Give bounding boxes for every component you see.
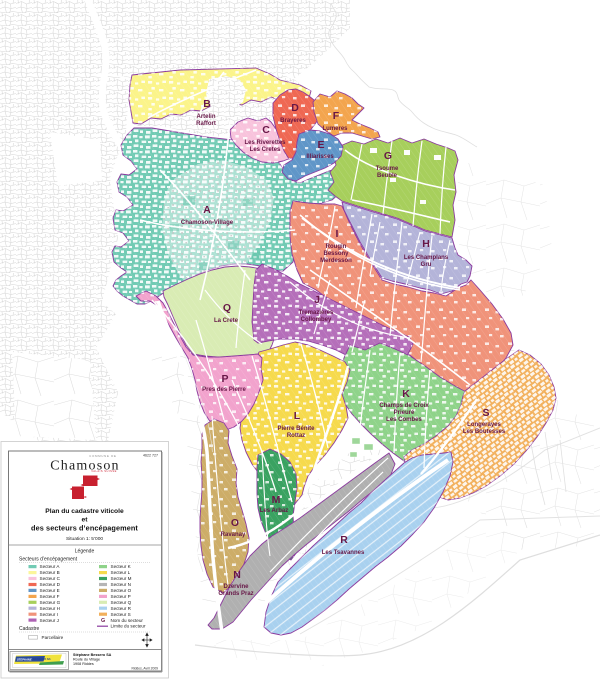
svg-text:Rottaz: Rottaz (287, 433, 305, 439)
svg-text:Légende: Légende (75, 549, 95, 555)
svg-text:Secteur S: Secteur S (111, 612, 131, 617)
svg-text:G: G (384, 150, 392, 162)
svg-text:Rougin: Rougin (326, 244, 347, 250)
svg-text:Situation 1: 5’000: Situation 1: 5’000 (66, 536, 103, 542)
svg-text:Grands Praz: Grands Praz (218, 591, 253, 597)
svg-text:Illiarisses: Illiarisses (306, 154, 334, 160)
svg-text:L: L (294, 410, 301, 422)
svg-text:M: M (272, 494, 281, 506)
svg-text:BESSERO SA: BESSERO SA (33, 657, 51, 661)
svg-text:4622 727: 4622 727 (143, 454, 158, 458)
svg-text:N: N (233, 569, 241, 581)
svg-text:Riddes, Avril 2009: Riddes, Avril 2009 (131, 667, 158, 671)
svg-text:Plan du cadastre viticole: Plan du cadastre viticole (45, 508, 124, 515)
svg-text:D: D (291, 102, 299, 114)
svg-text:Secteur K: Secteur K (111, 564, 132, 569)
svg-text:Secteur E: Secteur E (40, 588, 60, 593)
svg-text:A: A (203, 204, 211, 216)
svg-text:Collombey: Collombey (301, 317, 332, 323)
svg-text:Secteur M: Secteur M (111, 576, 132, 581)
svg-text:Cadastre: Cadastre (19, 626, 40, 632)
svg-text:C: C (262, 124, 270, 136)
svg-text:I: I (336, 228, 339, 240)
svg-text:COMMUNE DE: COMMUNE DE (89, 454, 116, 458)
svg-text:Secteur F: Secteur F (40, 594, 60, 599)
svg-text:Beuble: Beuble (377, 173, 398, 179)
svg-text:Parcellaire: Parcellaire (42, 635, 64, 640)
svg-text:B: B (203, 98, 211, 110)
svg-text:P: P (221, 373, 228, 385)
svg-text:Les Tsavannes: Les Tsavannes (322, 550, 365, 556)
svg-text:Ravanay: Ravanay (221, 532, 246, 538)
svg-text:Prieuré: Prieuré (394, 410, 415, 416)
svg-text:Chamoson-Village: Chamoson-Village (181, 220, 234, 226)
svg-text:Merdesson: Merdesson (320, 258, 352, 264)
svg-text:Les Cretes: Les Cretes (250, 147, 281, 153)
svg-text:O: O (231, 517, 239, 529)
svg-text:J: J (314, 294, 320, 306)
svg-text:Champs de Croix: Champs de Croix (379, 403, 429, 409)
svg-text:Secteur A: Secteur A (40, 564, 61, 569)
svg-text:Dzervine: Dzervine (223, 584, 249, 590)
svg-text:K: K (402, 388, 410, 400)
svg-text:S: S (482, 407, 489, 419)
svg-text:Route du Village: Route du Village (73, 658, 100, 662)
svg-text:La Crete: La Crete (214, 318, 239, 324)
svg-text:R: R (340, 534, 348, 546)
svg-text:Gru: Gru (421, 262, 432, 268)
svg-text:Lumeres: Lumeres (322, 126, 348, 132)
svg-text:Tsoume: Tsoume (376, 166, 399, 172)
svg-text:Secteur H: Secteur H (40, 606, 60, 611)
svg-text:Secteur B: Secteur B (40, 570, 60, 575)
svg-text:1908 Riddes: 1908 Riddes (73, 662, 94, 666)
svg-text:Pierre Bénite: Pierre Bénite (277, 426, 315, 432)
svg-text:Les Champlans: Les Champlans (404, 255, 449, 261)
svg-text:Les Combes: Les Combes (386, 417, 422, 423)
svg-text:Secteur Q: Secteur Q (111, 600, 132, 605)
svg-text:Limite du secteur: Limite du secteur (111, 624, 146, 629)
svg-text:STEPHANE: STEPHANE (17, 658, 32, 662)
svg-text:Secteur N: Secteur N (111, 582, 131, 587)
svg-text:F: F (333, 110, 340, 122)
svg-text:Nom du secteur: Nom du secteur (111, 618, 144, 623)
svg-text:Secteur I: Secteur I (40, 612, 58, 617)
svg-text:Secteur G: Secteur G (40, 600, 61, 605)
svg-text:Brayeres: Brayeres (280, 118, 306, 124)
svg-text:Artelin: Artelin (196, 114, 215, 120)
svg-text:E: E (317, 139, 324, 151)
svg-text:et: et (82, 517, 89, 524)
svg-text:Les Boutesses: Les Boutesses (463, 429, 506, 435)
svg-text:des secteurs d’encépagement: des secteurs d’encépagement (31, 524, 138, 533)
svg-text:H: H (422, 238, 430, 250)
svg-text:Tremazieres: Tremazieres (299, 310, 334, 316)
svg-text:Secteurs d’encépagement: Secteurs d’encépagement (19, 557, 78, 563)
svg-text:Les Arbaz: Les Arbaz (260, 508, 288, 514)
svg-text:Bessony: Bessony (323, 251, 349, 257)
svg-text:Q: Q (223, 302, 231, 314)
svg-text:Raffort: Raffort (196, 121, 216, 127)
svg-text:Secteur O: Secteur O (111, 588, 132, 593)
svg-text:Stéphane Bessero SA: Stéphane Bessero SA (73, 653, 112, 657)
svg-text:G: G (101, 618, 105, 624)
svg-text:Secteur C: Secteur C (40, 576, 61, 581)
svg-text:Longerayes: Longerayes (467, 422, 501, 428)
svg-text:Les Riverettes: Les Riverettes (244, 140, 286, 146)
svg-text:Secteur P: Secteur P (111, 594, 131, 599)
svg-text:VALAIS SUISSE: VALAIS SUISSE (91, 469, 117, 473)
svg-text:Secteur R: Secteur R (111, 606, 132, 611)
svg-text:Secteur J: Secteur J (40, 618, 59, 623)
svg-text:Pres des Pierre: Pres des Pierre (202, 387, 246, 393)
svg-text:Secteur L: Secteur L (111, 570, 131, 575)
svg-text:Secteur D: Secteur D (40, 582, 61, 587)
